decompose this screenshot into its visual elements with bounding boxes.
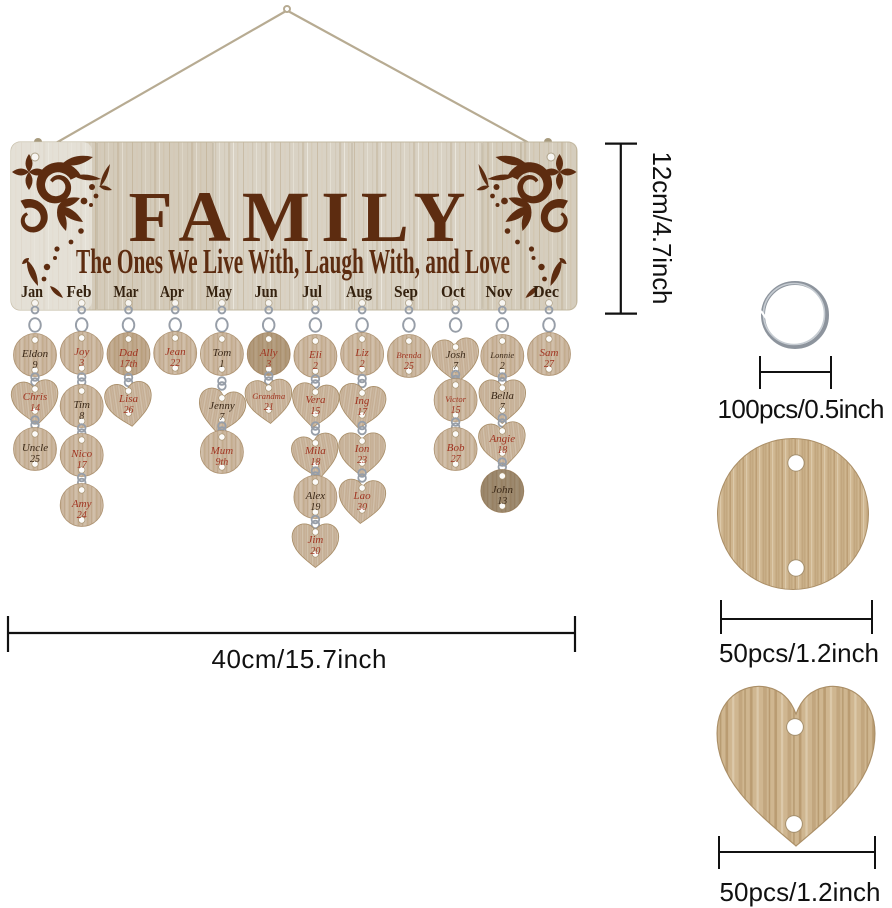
svg-text:Amy: Amy (71, 498, 92, 510)
svg-text:Apr: Apr (160, 282, 184, 301)
svg-text:100pcs/0.5inch: 100pcs/0.5inch (718, 394, 885, 424)
svg-text:40cm/15.7inch: 40cm/15.7inch (212, 644, 387, 674)
svg-text:Lao: Lao (353, 490, 372, 502)
svg-text:Joy: Joy (74, 346, 89, 358)
svg-text:Ing: Ing (354, 395, 370, 407)
svg-text:Alex: Alex (305, 490, 326, 502)
svg-text:2: 2 (313, 361, 318, 372)
svg-text:50pcs/1.2inch: 50pcs/1.2inch (720, 877, 881, 907)
svg-text:Chris: Chris (23, 391, 47, 403)
svg-text:Jul: Jul (302, 282, 322, 301)
svg-text:Aug: Aug (346, 282, 373, 301)
svg-text:9th: 9th (216, 457, 229, 468)
svg-text:17: 17 (357, 407, 368, 418)
svg-text:The Ones We Live With, Laugh W: The Ones We Live With, Laugh With, and L… (76, 242, 510, 281)
svg-text:Ally: Ally (259, 347, 278, 359)
svg-text:Oct: Oct (441, 282, 465, 301)
svg-text:Liz: Liz (354, 347, 369, 359)
svg-text:Uncle: Uncle (22, 442, 48, 454)
svg-text:21: 21 (264, 402, 274, 413)
svg-text:2: 2 (360, 359, 365, 370)
svg-text:27: 27 (544, 359, 555, 370)
svg-text:Grandma: Grandma (252, 391, 285, 401)
svg-text:26: 26 (124, 405, 134, 416)
svg-text:27: 27 (451, 454, 462, 465)
svg-text:Jan: Jan (21, 282, 43, 301)
svg-text:14: 14 (30, 403, 40, 414)
svg-text:Sam: Sam (540, 347, 559, 359)
svg-text:17th: 17th (120, 359, 138, 370)
svg-text:Dad: Dad (118, 347, 138, 359)
svg-text:15: 15 (451, 405, 461, 416)
svg-text:23: 23 (357, 455, 367, 466)
svg-text:Ion: Ion (354, 443, 370, 455)
svg-text:19: 19 (310, 502, 320, 513)
svg-text:Mila: Mila (304, 445, 326, 457)
svg-text:12cm/4.7inch: 12cm/4.7inch (647, 152, 677, 305)
svg-text:Tom: Tom (213, 347, 232, 359)
svg-text:Jenny: Jenny (209, 400, 235, 412)
svg-text:Lisa: Lisa (118, 393, 138, 405)
svg-text:13: 13 (497, 496, 507, 507)
svg-text:9: 9 (33, 360, 38, 371)
svg-text:30: 30 (356, 502, 367, 513)
svg-text:Jean: Jean (165, 346, 186, 358)
svg-text:Vera: Vera (305, 394, 326, 406)
svg-text:3: 3 (265, 359, 271, 370)
svg-text:Eldon: Eldon (21, 348, 49, 360)
svg-text:25: 25 (404, 361, 414, 372)
svg-text:Angie: Angie (488, 433, 515, 445)
svg-text:Josh: Josh (446, 349, 467, 361)
svg-text:Eli: Eli (308, 349, 322, 361)
svg-text:Brenda: Brenda (396, 350, 421, 360)
svg-text:18: 18 (497, 445, 507, 456)
svg-text:24: 24 (77, 510, 87, 521)
svg-text:Jun: Jun (255, 282, 278, 301)
svg-text:John: John (492, 484, 514, 496)
svg-text:Sep: Sep (394, 282, 418, 301)
svg-text:17: 17 (77, 460, 88, 471)
svg-text:20: 20 (310, 546, 320, 557)
svg-text:1: 1 (219, 359, 224, 370)
svg-text:Mum: Mum (210, 445, 234, 457)
svg-text:Feb: Feb (67, 282, 92, 301)
svg-text:Dec: Dec (533, 282, 559, 301)
svg-text:50pcs/1.2inch: 50pcs/1.2inch (719, 638, 879, 668)
svg-text:Nico: Nico (70, 448, 92, 460)
svg-text:15: 15 (310, 406, 320, 417)
svg-text:May: May (206, 282, 233, 301)
svg-text:Bella: Bella (491, 390, 515, 402)
svg-text:25: 25 (30, 454, 40, 465)
svg-text:Bob: Bob (447, 442, 465, 454)
svg-text:Nov: Nov (486, 282, 514, 301)
svg-text:22: 22 (170, 358, 180, 369)
svg-text:8: 8 (79, 411, 84, 422)
svg-text:2: 2 (500, 361, 505, 372)
svg-text:Victor: Victor (445, 394, 466, 404)
svg-text:Lonnie: Lonnie (489, 350, 514, 360)
svg-text:3: 3 (78, 358, 84, 369)
svg-text:Mar: Mar (114, 282, 139, 301)
svg-text:Jim: Jim (307, 534, 323, 546)
svg-text:Tim: Tim (73, 399, 90, 411)
